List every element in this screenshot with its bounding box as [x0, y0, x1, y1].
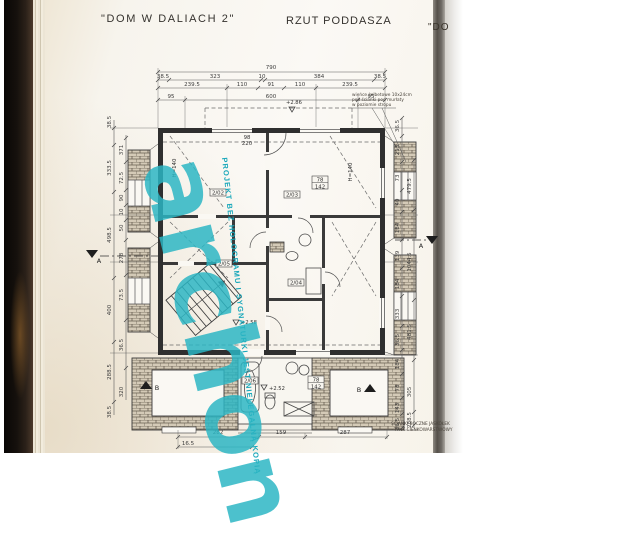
room-label: 2/04 — [290, 281, 303, 287]
dimension-label: 36.5 — [395, 119, 401, 132]
dimension-label: 239.5 — [342, 82, 358, 88]
door-height-label: 220 — [242, 141, 253, 147]
section-b-label: B — [155, 384, 159, 392]
dimension-label: 1044.5 — [407, 252, 413, 272]
level-label: +2.86 — [286, 100, 302, 106]
note-bottom-right: ŚCIANKI BOCZNE JASKÓŁEK - TYNK CIENKOWAR… — [391, 420, 453, 433]
dimension-label: 78 — [395, 384, 401, 391]
dimension-label: 139 — [395, 250, 401, 261]
dimension-label: 184 — [395, 278, 401, 289]
floor-plan-drawing: 790 38.5 323 10 384 38.5 239.5 110 91 11… — [0, 0, 640, 453]
dimension-label: 320 — [119, 386, 125, 397]
dimension-label: 38.5 — [107, 115, 113, 128]
dimension-label: 91 — [268, 82, 275, 88]
window-height-label: 142 — [311, 385, 321, 391]
dimension-label: 278 — [119, 252, 125, 263]
section-b-label: B — [357, 386, 361, 394]
dimension-label: 323 — [210, 74, 221, 80]
dimension-label: 73 — [395, 174, 401, 181]
window-width-label: 78 — [313, 378, 320, 384]
dimension-label: 239.5 — [184, 82, 200, 88]
dimension-label: 288.5 — [107, 364, 113, 380]
dimension-label: 73.5 — [119, 288, 125, 301]
dimension-label: 10 — [259, 74, 266, 80]
dimension-label: 498.5 — [107, 227, 113, 243]
section-a-label: A — [97, 257, 102, 265]
dimension-label: 184 — [395, 222, 401, 233]
dimension-label: 10 — [119, 208, 125, 215]
dimension-label: 333 — [395, 308, 401, 319]
dimension-label: 384 — [314, 74, 325, 80]
document-title: "DOM W DALIACH 2" — [101, 13, 235, 25]
note-line: wieńce żelbetowe 10x24cm — [352, 91, 412, 98]
dimension-label: 481.5 — [407, 324, 413, 340]
next-page-text-fragment: "DO — [428, 22, 450, 33]
dimension-label: 600 — [266, 94, 277, 100]
window-width-label: 78 — [317, 178, 324, 184]
ceiling-height-label: H=140 — [348, 162, 354, 181]
note-line: - TYNK CIENKOWARSTWOWY — [391, 427, 453, 433]
dimension-label: 38.5 — [374, 74, 387, 80]
dimension-label: 110 — [295, 82, 306, 88]
drawing-title: RZUT PODDASZA — [286, 15, 392, 27]
note-line: pod ścianki pod murłaty — [352, 96, 404, 103]
chimney — [270, 242, 284, 252]
section-a-label: A — [419, 242, 424, 250]
dimension-label: 184 — [395, 358, 401, 369]
dimension-label: 95 — [168, 94, 175, 100]
dimension-label: 287 — [340, 430, 351, 436]
note-line: ŚCIANKI BOCZNE JASKÓŁEK — [391, 420, 450, 427]
dimension-label: 143 — [395, 402, 401, 413]
dimension-label: 400 — [107, 304, 113, 315]
note-line: w poziomie stropu — [352, 102, 392, 108]
dimension-label: 40 — [395, 198, 401, 205]
dimension-label: 36.5 — [395, 333, 401, 346]
dimension-label: 479.5 — [407, 178, 413, 194]
dimension-label: 50 — [119, 224, 125, 231]
dimension-label: 38.5 — [107, 405, 113, 418]
window-height-label: 142 — [315, 185, 325, 191]
dimension-label: 110 — [237, 82, 248, 88]
dimension-label: 36.5 — [119, 338, 125, 351]
dimension-label: 333.5 — [107, 160, 113, 176]
dimension-label: 38.5 — [157, 74, 170, 80]
dimension-label: 790 — [266, 65, 277, 71]
room-label: 2/03 — [286, 193, 298, 199]
dimension-label: 305 — [407, 386, 413, 397]
dimension-label: 371 — [119, 145, 125, 156]
